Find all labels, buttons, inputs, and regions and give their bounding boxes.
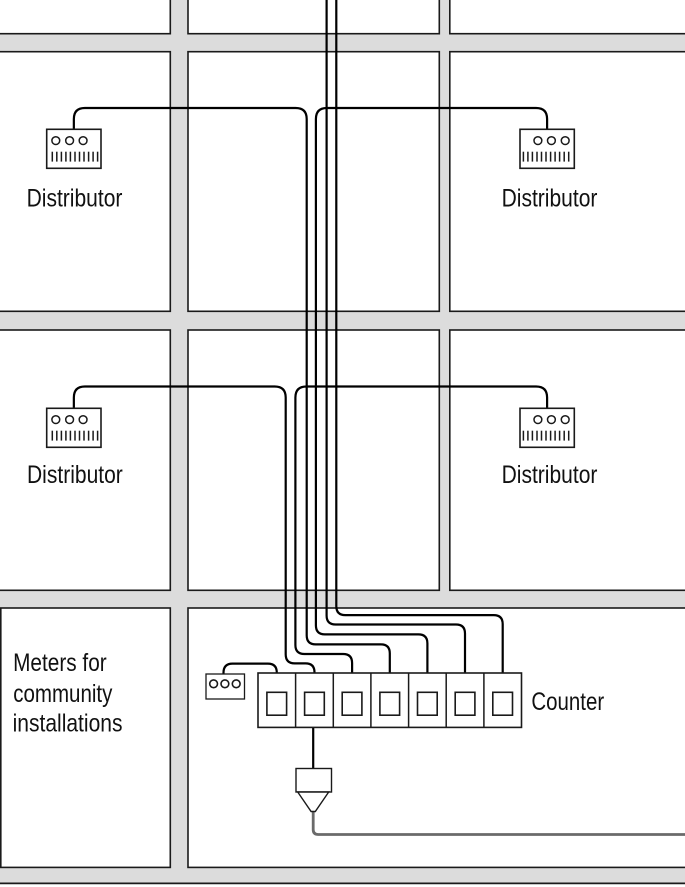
svg-text:Distributor: Distributor: [27, 184, 123, 212]
svg-text:installations: installations: [13, 709, 123, 737]
svg-text:Meters for: Meters for: [13, 649, 107, 677]
svg-text:Counter: Counter: [531, 688, 604, 716]
svg-text:community: community: [13, 680, 113, 708]
svg-text:Distributor: Distributor: [502, 184, 598, 212]
svg-text:Distributor: Distributor: [502, 461, 598, 489]
svg-text:Distributor: Distributor: [27, 461, 123, 489]
